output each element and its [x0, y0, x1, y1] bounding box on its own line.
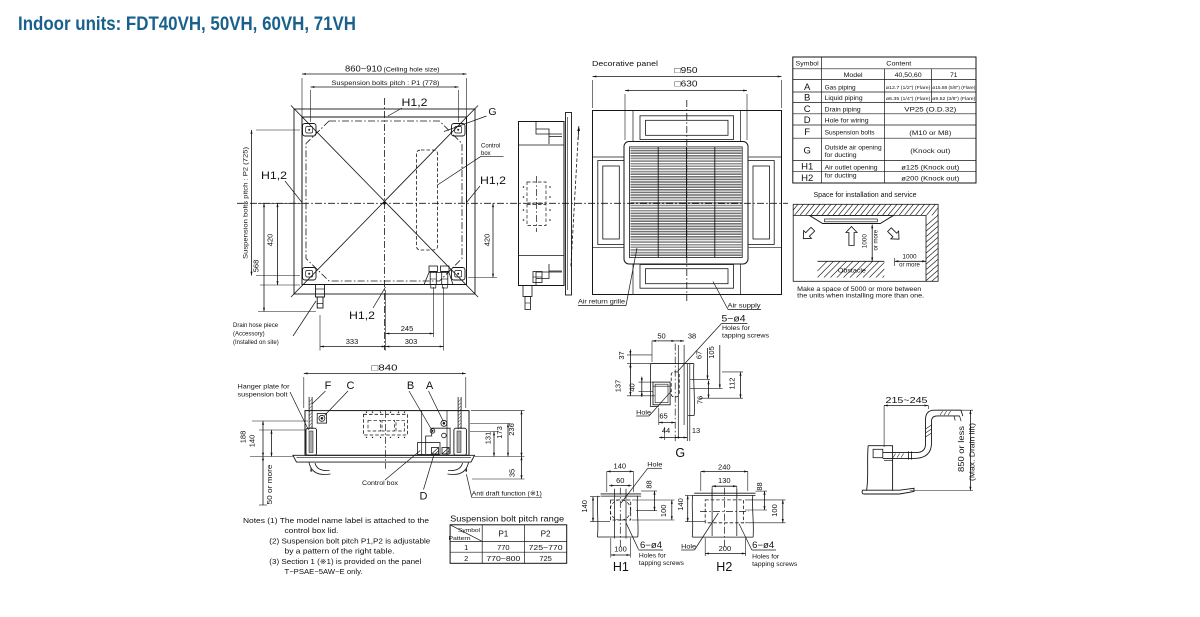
- svg-text:control box lid.: control box lid.: [285, 528, 339, 535]
- svg-text:□840: □840: [372, 363, 398, 373]
- svg-text:D: D: [804, 115, 811, 126]
- svg-text:131: 131: [484, 432, 493, 445]
- svg-text:tapping screws: tapping screws: [722, 332, 769, 339]
- svg-text:Suspension bolts: Suspension bolts: [825, 130, 875, 137]
- svg-text:VP25 (O.D.32): VP25 (O.D.32): [904, 107, 956, 114]
- svg-text:P1: P1: [498, 530, 508, 539]
- svg-text:ø200 (Knock out): ø200 (Knock out): [901, 176, 959, 183]
- svg-text:725: 725: [539, 554, 552, 563]
- svg-text:420: 420: [265, 234, 274, 247]
- svg-text:Holes for: Holes for: [722, 325, 750, 332]
- svg-text:Suspension bolts pitch : P2 (7: Suspension bolts pitch : P2 (725): [243, 147, 250, 259]
- svg-text:850 or less: 850 or less: [956, 426, 966, 472]
- svg-text:Indoor units: FDT40VH, 50VH, 6: Indoor units: FDT40VH, 50VH, 60VH, 71VH: [18, 13, 356, 35]
- svg-text:or more: or more: [874, 229, 880, 250]
- svg-text:6−ø4: 6−ø4: [752, 540, 774, 550]
- svg-text:Decorative panel: Decorative panel: [592, 59, 658, 68]
- svg-text:38: 38: [688, 332, 696, 341]
- svg-text:67: 67: [695, 351, 704, 359]
- svg-text:Drain piping: Drain piping: [825, 106, 862, 113]
- svg-text:88: 88: [755, 482, 764, 490]
- svg-text:100: 100: [614, 545, 627, 554]
- svg-text:for ducting: for ducting: [825, 152, 858, 159]
- svg-text:Symbol: Symbol: [458, 528, 480, 534]
- svg-text:1: 1: [464, 543, 468, 552]
- svg-text:Air return grille: Air return grille: [578, 299, 626, 306]
- svg-text:Drain hose piece: Drain hose piece: [233, 323, 279, 329]
- svg-text:for ducting: for ducting: [825, 173, 858, 180]
- svg-text:13: 13: [692, 426, 700, 435]
- svg-text:(Accessory): (Accessory): [233, 332, 265, 338]
- svg-text:Control: Control: [481, 144, 500, 150]
- svg-text:suspension bolt: suspension bolt: [238, 391, 288, 398]
- svg-text:71: 71: [950, 72, 958, 79]
- svg-text:76: 76: [696, 396, 705, 404]
- svg-text:44: 44: [662, 426, 670, 435]
- svg-text:Air supply: Air supply: [728, 303, 762, 310]
- svg-text:2: 2: [464, 554, 468, 563]
- svg-text:Suspension bolts pitch : P1 (7: Suspension bolts pitch : P1 (778): [332, 80, 440, 87]
- svg-text:Hole for wiring: Hole for wiring: [825, 118, 870, 125]
- svg-text:G: G: [804, 146, 811, 157]
- svg-text:H1,2: H1,2: [349, 310, 375, 322]
- svg-text:173: 173: [495, 426, 504, 439]
- svg-text:H1,2: H1,2: [402, 97, 428, 109]
- svg-text:200: 200: [719, 544, 732, 553]
- svg-text:H1: H1: [801, 161, 813, 172]
- svg-text:35: 35: [508, 469, 517, 477]
- svg-text:Hole: Hole: [647, 462, 663, 469]
- svg-text:ø125 (Knock out): ø125 (Knock out): [901, 164, 959, 171]
- svg-text:or more: or more: [899, 263, 920, 269]
- svg-text:Notes (1) The model name labe: Notes (1) The model name label is attach…: [243, 518, 429, 525]
- svg-text:Control box: Control box: [362, 480, 399, 487]
- svg-text:40: 40: [628, 383, 637, 391]
- svg-text:Symbol: Symbol: [796, 60, 820, 67]
- svg-text:240: 240: [718, 462, 731, 471]
- svg-text:1000: 1000: [902, 254, 917, 261]
- svg-text:Pattern: Pattern: [449, 536, 471, 542]
- svg-text:140: 140: [676, 498, 685, 511]
- svg-text:F: F: [325, 380, 332, 392]
- svg-text:ø9.52 (3/8") (Flare): ø9.52 (3/8") (Flare): [932, 96, 975, 102]
- svg-text:tapping screws: tapping screws: [752, 561, 797, 568]
- svg-text:B: B: [804, 93, 810, 104]
- svg-text:50: 50: [657, 332, 665, 341]
- svg-text:60: 60: [616, 476, 624, 485]
- svg-text:by a pattern of the right tabl: by a pattern of the right table.: [285, 549, 395, 556]
- svg-text:Outside air opening: Outside air opening: [825, 145, 883, 152]
- svg-text:88: 88: [645, 480, 654, 488]
- svg-text:770: 770: [497, 543, 510, 552]
- svg-text:Obstacle: Obstacle: [838, 268, 867, 275]
- svg-text:C: C: [804, 104, 811, 115]
- svg-text:50 or more: 50 or more: [265, 465, 274, 505]
- svg-text:Liquid piping: Liquid piping: [825, 95, 864, 102]
- svg-text:40,50,60: 40,50,60: [895, 72, 922, 79]
- svg-text:333: 333: [346, 337, 359, 346]
- svg-text:Holes for: Holes for: [752, 553, 779, 560]
- svg-text:Space for installation and ser: Space for installation and service: [814, 192, 917, 199]
- svg-text:ø15.88 (5/8") (Flare): ø15.88 (5/8") (Flare): [932, 85, 975, 91]
- svg-text:H1,2: H1,2: [480, 175, 506, 187]
- svg-text:A: A: [804, 82, 811, 93]
- svg-text:H2: H2: [801, 173, 813, 184]
- svg-text:ø6.35 (1/4") (Flare): ø6.35 (1/4") (Flare): [886, 96, 931, 102]
- svg-text:140: 140: [248, 435, 257, 448]
- svg-text:Content: Content: [886, 61, 911, 68]
- svg-text:G: G: [675, 446, 685, 460]
- svg-text:105: 105: [707, 346, 716, 359]
- svg-text:the units when installing more: the units when installing more than one.: [797, 293, 924, 300]
- svg-text:100: 100: [770, 504, 779, 517]
- svg-text:770~800: 770~800: [486, 554, 520, 563]
- svg-text:1000: 1000: [862, 234, 869, 249]
- svg-text:Anti draft function (※1): Anti draft function (※1): [472, 491, 542, 498]
- svg-text:Model: Model: [844, 72, 863, 79]
- svg-text:420: 420: [482, 234, 491, 247]
- svg-text:Gas piping: Gas piping: [825, 84, 857, 91]
- svg-text:6−ø4: 6−ø4: [640, 540, 662, 550]
- svg-text:Hole: Hole: [681, 544, 697, 551]
- svg-text:Hanger plate for: Hanger plate for: [238, 384, 290, 391]
- svg-text:140: 140: [580, 500, 589, 513]
- svg-text:H2: H2: [716, 560, 732, 574]
- svg-text:F: F: [804, 127, 810, 138]
- svg-text:□950: □950: [675, 65, 698, 75]
- svg-text:D: D: [420, 491, 428, 503]
- svg-text:65: 65: [659, 412, 667, 421]
- svg-text:Holes for: Holes for: [639, 553, 666, 560]
- svg-text:tapping screws: tapping screws: [639, 560, 684, 567]
- svg-text:□630: □630: [675, 78, 698, 88]
- svg-text:140: 140: [614, 461, 627, 470]
- svg-text:C: C: [347, 380, 355, 392]
- svg-text:B: B: [407, 380, 414, 392]
- svg-text:236: 236: [507, 423, 516, 436]
- svg-text:303: 303: [405, 337, 418, 346]
- svg-text:P2: P2: [541, 530, 551, 539]
- svg-text:100: 100: [659, 505, 668, 518]
- svg-text:245: 245: [401, 324, 414, 333]
- svg-text:(Knock out): (Knock out): [910, 148, 950, 155]
- svg-text:112: 112: [728, 378, 737, 390]
- svg-text:T−PSAE−5AW−E only.: T−PSAE−5AW−E only.: [285, 569, 363, 576]
- svg-text:(3) Section 1 (※1) is provided: (3) Section 1 (※1) is provided on the pa…: [269, 559, 422, 566]
- svg-text:H1,2: H1,2: [261, 170, 287, 182]
- svg-text:860~910: 860~910: [345, 64, 382, 74]
- svg-text:(Installed on site): (Installed on site): [233, 340, 279, 346]
- svg-text:130: 130: [718, 476, 731, 485]
- svg-text:188: 188: [239, 431, 248, 444]
- svg-text:(Ceiling hole size): (Ceiling hole size): [384, 67, 440, 74]
- svg-text:725~770: 725~770: [529, 543, 563, 552]
- svg-text:H1: H1: [613, 560, 629, 574]
- svg-text:G: G: [488, 106, 496, 118]
- svg-text:37: 37: [617, 351, 626, 359]
- svg-text:5−ø4: 5−ø4: [722, 314, 746, 324]
- svg-text:Air outlet opening: Air outlet opening: [825, 165, 879, 172]
- svg-text:137: 137: [614, 380, 623, 393]
- svg-text:A: A: [426, 380, 434, 392]
- svg-text:568: 568: [251, 260, 260, 273]
- svg-text:(2) Suspension bolt pitch P1,P: (2) Suspension bolt pitch P1,P2 is adjus…: [269, 538, 430, 545]
- svg-text:ø12.7 (1/2") (Flare): ø12.7 (1/2") (Flare): [886, 85, 931, 91]
- svg-text:Suspension bolt pitch range: Suspension bolt pitch range: [450, 514, 564, 524]
- svg-text:(M10 or M8): (M10 or M8): [909, 130, 951, 137]
- svg-text:215~245: 215~245: [886, 395, 928, 405]
